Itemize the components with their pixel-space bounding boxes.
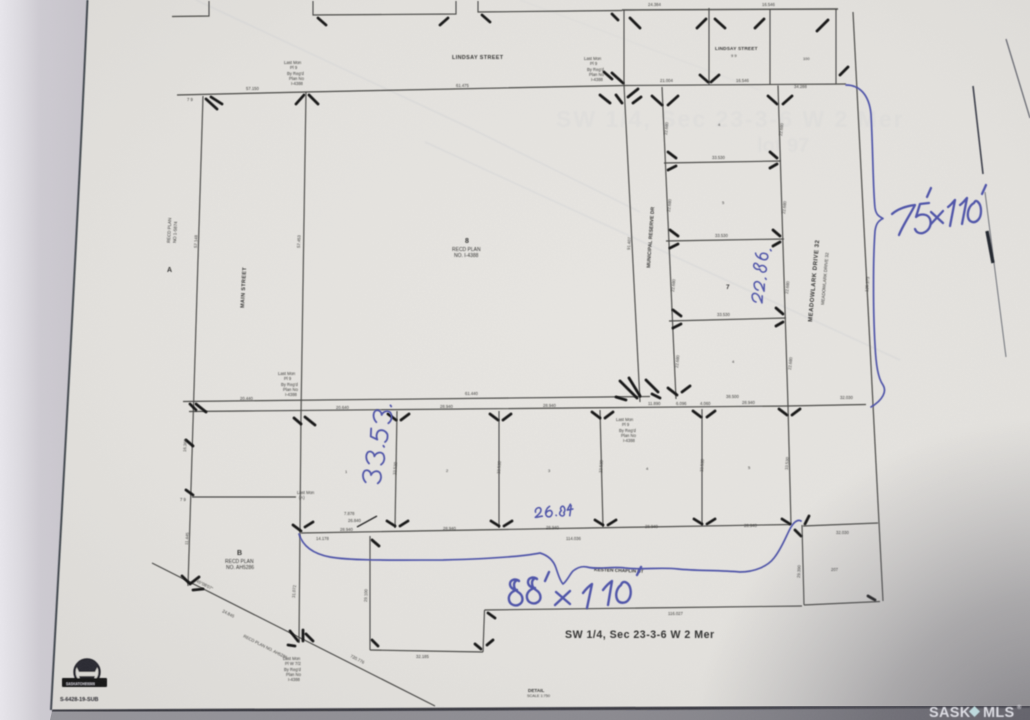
svg-text:SASK: SASK xyxy=(929,705,971,720)
svg-text:MLS: MLS xyxy=(983,705,1015,720)
svg-text:®: ® xyxy=(1017,704,1022,711)
